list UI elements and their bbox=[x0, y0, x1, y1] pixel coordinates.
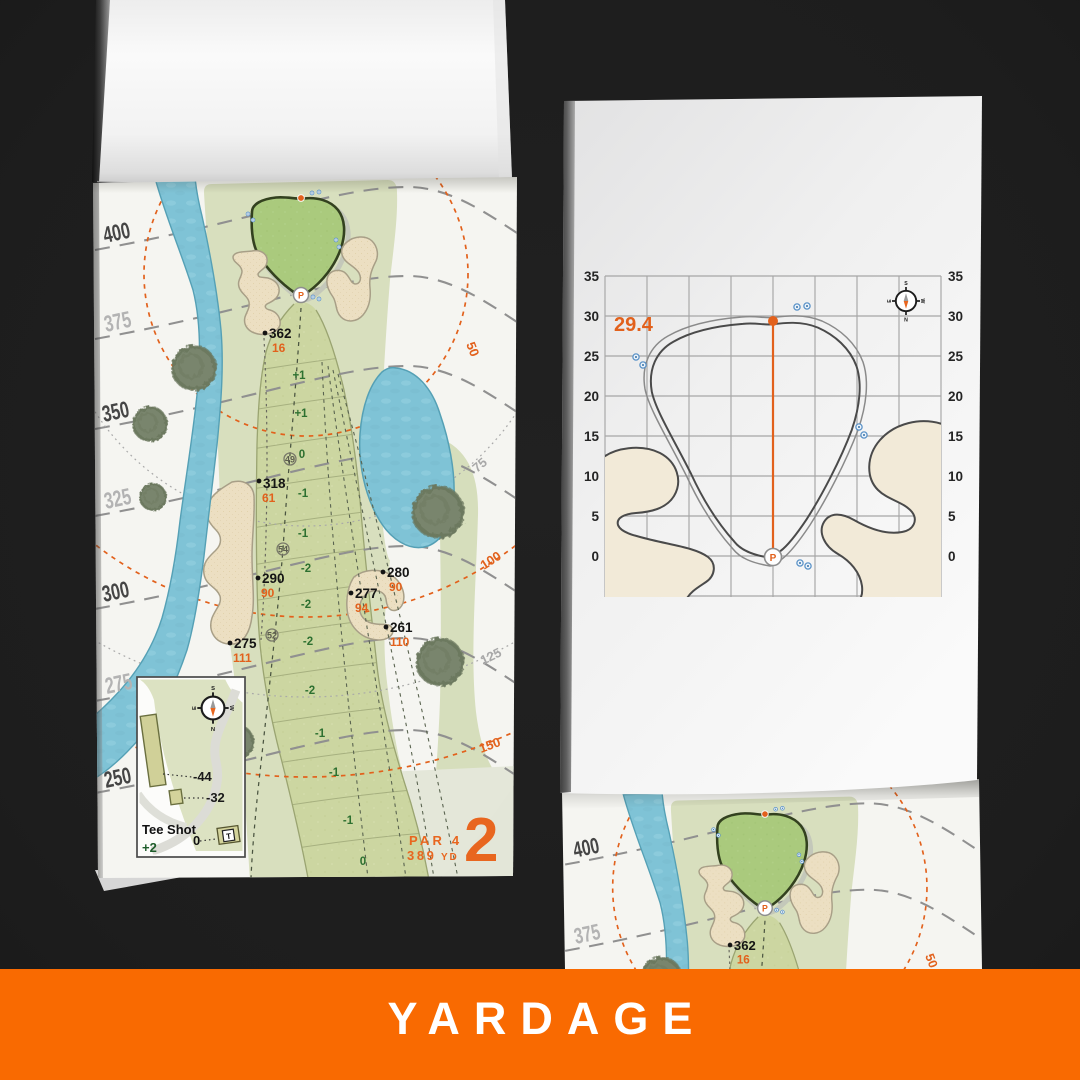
svg-text:90: 90 bbox=[261, 586, 275, 600]
svg-text:-2: -2 bbox=[303, 636, 313, 648]
svg-text:250: 250 bbox=[102, 762, 134, 793]
svg-text:-2: -2 bbox=[301, 563, 311, 575]
svg-text:90: 90 bbox=[389, 580, 403, 594]
svg-text:10: 10 bbox=[948, 469, 963, 484]
svg-text:300: 300 bbox=[100, 576, 132, 607]
svg-text:280: 280 bbox=[387, 565, 410, 580]
svg-text:-2: -2 bbox=[305, 685, 315, 697]
svg-text:29.4: 29.4 bbox=[614, 314, 654, 336]
svg-text:61: 61 bbox=[262, 491, 276, 505]
svg-text:16: 16 bbox=[272, 341, 286, 355]
svg-text:0: 0 bbox=[360, 856, 366, 868]
svg-text:+1: +1 bbox=[292, 370, 306, 382]
svg-text:25: 25 bbox=[948, 349, 964, 364]
svg-text:0: 0 bbox=[193, 833, 200, 848]
svg-text:375: 375 bbox=[102, 306, 134, 337]
svg-text:-1: -1 bbox=[315, 728, 326, 740]
svg-text:P: P bbox=[298, 291, 304, 301]
svg-text:-1: -1 bbox=[343, 815, 354, 827]
svg-text:350: 350 bbox=[100, 396, 132, 427]
svg-text:-1: -1 bbox=[298, 488, 309, 500]
svg-text:-1: -1 bbox=[298, 528, 309, 540]
svg-text:Tee Shot: Tee Shot bbox=[142, 822, 197, 837]
svg-text:35: 35 bbox=[584, 269, 600, 284]
svg-text:-2: -2 bbox=[301, 599, 311, 611]
svg-text:400: 400 bbox=[101, 217, 133, 248]
svg-text:389: 389 bbox=[407, 848, 437, 863]
svg-text:20: 20 bbox=[584, 389, 599, 404]
svg-text:5: 5 bbox=[591, 509, 599, 524]
svg-text:49: 49 bbox=[285, 455, 295, 465]
svg-text:-32: -32 bbox=[206, 790, 225, 805]
svg-text:110: 110 bbox=[390, 635, 410, 649]
svg-text:2: 2 bbox=[464, 806, 498, 875]
svg-text:YARDAGE: YARDAGE bbox=[388, 993, 707, 1044]
svg-text:275: 275 bbox=[234, 636, 257, 651]
svg-text:54: 54 bbox=[278, 545, 288, 555]
svg-text:290: 290 bbox=[262, 571, 285, 586]
svg-text:94: 94 bbox=[355, 601, 369, 615]
svg-text:0: 0 bbox=[299, 449, 305, 461]
svg-text:15: 15 bbox=[584, 429, 600, 444]
svg-text:15: 15 bbox=[948, 429, 964, 444]
svg-text:30: 30 bbox=[584, 309, 599, 324]
svg-text:318: 318 bbox=[263, 476, 286, 491]
svg-text:275: 275 bbox=[103, 668, 135, 699]
svg-text:261: 261 bbox=[390, 620, 413, 635]
svg-text:+2: +2 bbox=[142, 840, 157, 855]
svg-text:20: 20 bbox=[948, 389, 963, 404]
svg-text:0: 0 bbox=[948, 549, 956, 564]
svg-text:30: 30 bbox=[948, 309, 963, 324]
svg-text:P: P bbox=[770, 553, 777, 564]
svg-text:111: 111 bbox=[233, 651, 252, 665]
svg-text:52: 52 bbox=[267, 631, 277, 641]
svg-text:PAR 4: PAR 4 bbox=[409, 833, 462, 848]
svg-text:35: 35 bbox=[948, 269, 964, 284]
svg-text:+1: +1 bbox=[294, 408, 308, 420]
svg-text:-44: -44 bbox=[193, 769, 213, 784]
svg-text:0: 0 bbox=[591, 549, 599, 564]
svg-text:277: 277 bbox=[355, 586, 378, 601]
svg-text:10: 10 bbox=[584, 469, 599, 484]
svg-text:325: 325 bbox=[102, 483, 134, 514]
svg-text:YD: YD bbox=[441, 852, 459, 863]
svg-text:362: 362 bbox=[269, 326, 292, 341]
svg-text:25: 25 bbox=[584, 349, 600, 364]
svg-text:5: 5 bbox=[948, 509, 956, 524]
svg-text:-1: -1 bbox=[329, 767, 340, 779]
